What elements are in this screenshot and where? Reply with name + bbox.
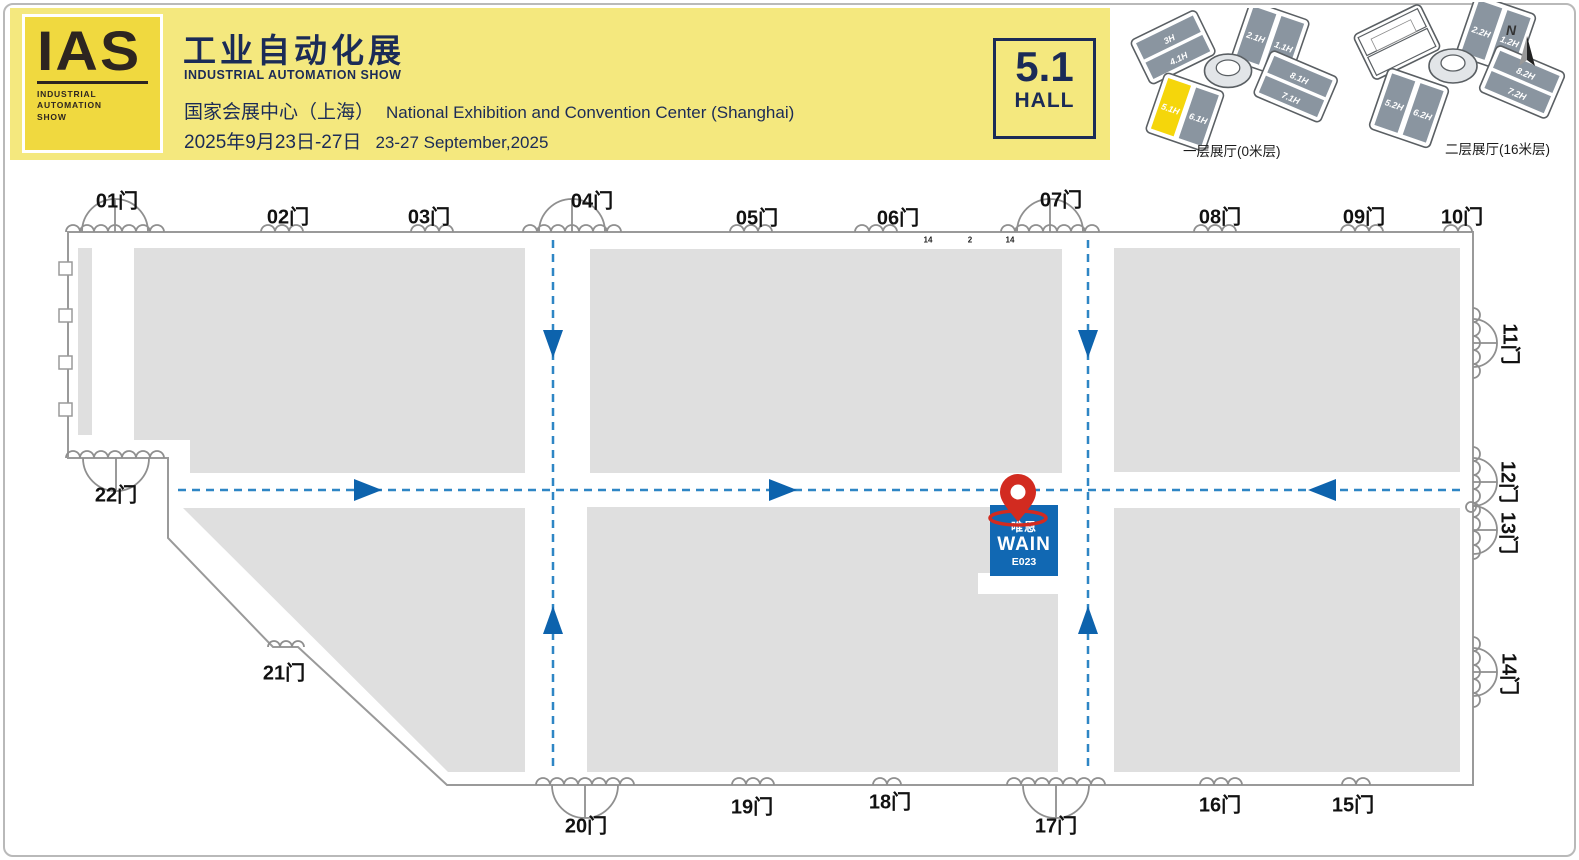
wall-notch [59,309,72,322]
wall-notch [59,262,72,275]
show-title-en: INDUSTRIAL AUTOMATION SHOW [184,68,401,82]
wall-mark: 14 [924,236,933,245]
booth-number: E023 [990,556,1058,568]
wall-notch [59,356,72,369]
hall-number: 5.1 [996,45,1093,89]
gate-label-05: 05门 [736,202,778,231]
gate-14-door [1473,637,1497,707]
gate-label-07: 07门 [1040,184,1082,213]
floor2-caption: 二层展厅(16米层) [1445,138,1550,158]
arrow-right-icon [769,479,797,501]
ias-logo: IAS INDUSTRIAL AUTOMATION SHOW [22,14,163,153]
floor1-arm-nw: 3H 4.1H [1130,9,1217,85]
gate-label-13: 13门 [1496,512,1525,554]
header-banner [10,8,1110,160]
wall-notch [59,403,72,416]
hall-label: HALL [996,89,1093,113]
venue-line: 国家会展中心（上海）National Exhibition and Conven… [184,97,794,124]
arrow-down-icon [543,330,563,358]
gate-label-02: 02门 [267,201,309,230]
venue-en: National Exhibition and Convention Cente… [386,103,794,122]
exhibition-blocks [78,248,1460,772]
venue-overview-map-floor1: 3H 4.1H 2.1H 1.1H 8.1H 7.1H 5.1H 6.1H [1120,8,1340,160]
arrow-right-icon [354,479,382,501]
gate-16-door [1200,778,1242,785]
gate-label-04: 04门 [571,185,613,214]
compass-icon: N [1500,20,1544,72]
gate-label-01: 01门 [96,185,138,214]
gate-label-03: 03门 [408,201,450,230]
block-west-strip [78,248,92,435]
gate-label-20: 20门 [565,810,607,839]
gate-11-door [1473,308,1497,378]
gate-15-door [1342,778,1370,785]
logo-acronym: IAS [37,23,166,79]
booth-notch [978,573,1058,594]
gate-label-15: 15门 [1332,789,1374,818]
hall-badge: 5.1 HALL [993,38,1096,139]
block-bottom-middle [587,507,1058,772]
block-top-left [134,248,525,473]
gate-label-10: 10门 [1441,201,1483,230]
gate-label-16: 16门 [1199,789,1241,818]
wall-mark: 2 [968,236,972,245]
gate-label-11: 11门 [1498,323,1527,364]
gate-label-14: 14门 [1497,653,1526,695]
wall-fixture [1466,502,1476,512]
gate-label-08: 08门 [1199,201,1241,230]
floor2-arm-nw [1353,3,1441,80]
gate-label-09: 09门 [1343,201,1385,230]
dates-en: 23-27 September,2025 [375,133,548,152]
gate-label-22: 22门 [95,479,137,508]
show-title-cn: 工业自动化展 [183,24,405,72]
location-pin-icon [983,456,1053,536]
block-bottom-left [183,508,525,772]
gate-label-17: 17门 [1035,810,1077,839]
gate-13-door [1473,506,1497,559]
logo-tagline: INDUSTRIAL AUTOMATION SHOW [37,89,160,123]
gate-label-06: 06门 [877,202,919,231]
floor1-caption: 一层展厅(0米层) [1183,140,1281,160]
wall-mark: 14 [1006,236,1015,245]
block-top-right [1114,248,1460,472]
block-bottom-right [1114,508,1460,772]
gate-label-12: 12门 [1496,461,1525,503]
venue-cn: 国家会展中心（上海） [184,102,374,123]
arrow-down-icon [1078,330,1098,358]
date-line: 2025年9月23日-27日23-27 September,2025 [184,127,548,154]
gate-18-door [873,778,901,785]
gate-label-18: 18门 [869,786,911,815]
block-top-middle [590,249,1062,473]
booth-name-en: WAIN [990,535,1058,556]
svg-text:N: N [1506,22,1517,38]
arrow-up-icon [543,606,563,634]
gate-label-19: 19门 [731,791,773,820]
arrow-left-icon [1308,479,1336,501]
dates-cn: 2025年9月23日-27日 [184,132,361,153]
arrow-up-icon [1078,606,1098,634]
gate-19-door [732,778,774,785]
gate-label-21: 21门 [263,657,305,686]
